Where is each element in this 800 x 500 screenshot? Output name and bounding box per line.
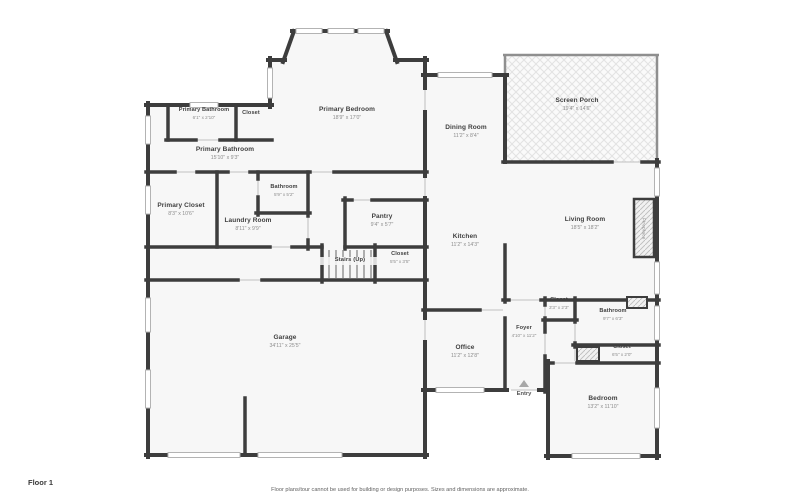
room-name: Bedroom [549,395,657,403]
room-label-pantry: Pantry 9'4" x 5'7" [352,213,412,229]
room-dims: 5'5" x 3'5" [377,259,423,265]
room-dims: 6'1" x 2'10" [174,115,234,121]
room-label-bathroom-br: Bathroom 9'7" x 6'3" [578,308,648,322]
room-name: Pantry [352,213,412,221]
room-name: Screen Porch [527,97,627,105]
room-label-office: Office 11'2" x 12'8" [428,344,502,360]
room-dims: 11'2" x 12'8" [428,353,502,360]
room-label-living-room: Living Room 18'5" x 18'2" [535,216,635,232]
room-name: Closet [231,110,271,117]
room-name: Closet [542,297,576,304]
room-dims: 3'3" x 2'3" [542,305,576,311]
room-dims: 11'2" x 8'4" [426,133,506,140]
room-name: Closet [590,344,654,351]
room-name: Primary Bedroom [297,106,397,114]
room-label-closet-br: Closet 6'5" x 2'0" [590,344,654,358]
room-dims: 8'3" x 10'6" [147,211,215,218]
room-label-primary-closet: Primary Closet 8'3" x 10'6" [147,202,215,218]
room-dims: 6'5" x 2'0" [590,352,654,358]
room-dims: 4'10" x 11'2" [501,333,547,339]
room-dims: 9'4" x 5'7" [352,222,412,229]
room-label-primary-bathroom-main: Primary Bathroom 15'10" x 9'3" [165,146,285,162]
floor-plan-page: Primary Bathroom 6'1" x 2'10" Closet Pri… [0,0,800,500]
room-dims: 11'2" x 14'3" [425,242,505,249]
room-label-laundry-room: Laundry Room 8'11" x 9'9" [210,217,286,233]
room-name: Garage [230,334,340,342]
room-name: Dining Room [426,124,506,132]
room-label-bedroom: Bedroom 13'2" x 11'10" [549,395,657,411]
room-name: Office [428,344,502,352]
room-label-closet-stairs: Closet 5'5" x 3'5" [377,251,423,265]
room-label-garage: Garage 34'11" x 25'5" [230,334,340,350]
room-dims: 8'11" x 9'9" [210,226,286,233]
floor-selector-label: Floor 1 [28,478,53,487]
room-name: Laundry Room [210,217,286,225]
room-name: Foyer [501,325,547,332]
room-dims: 19'4" x 14'6" [527,106,627,113]
room-name: Bathroom [578,308,648,315]
room-name: Stairs (Up) [320,257,380,265]
room-label-foyer: Foyer 4'10" x 11'2" [501,325,547,339]
room-dims: 13'2" x 11'10" [549,404,657,411]
room-name: Living Room [535,216,635,224]
room-label-bathroom-small: Bathroom 5'9" x 5'2" [258,184,310,198]
room-label-primary-bathroom-small: Primary Bathroom 6'1" x 2'10" [174,107,234,121]
disclaimer-text: Floor plans/tour cannot be used for buil… [0,487,800,493]
room-label-dining-room: Dining Room 11'2" x 8'4" [426,124,506,140]
room-label-closet-foyer: Closet 3'3" x 2'3" [542,297,576,311]
room-name: Primary Bathroom [174,107,234,114]
room-dims: 34'11" x 25'5" [230,343,340,350]
room-dims: 18'9" x 17'0" [297,115,397,122]
room-name: Primary Bathroom [165,146,285,154]
fireplace-label: Fireplace [636,202,652,256]
room-label-kitchen: Kitchen 11'2" x 14'3" [425,233,505,249]
entry-label: Entry [504,391,544,397]
room-name: Primary Closet [147,202,215,210]
room-dims: 5'9" x 5'2" [258,192,310,198]
room-dims: 18'5" x 18'2" [535,225,635,232]
room-dims: 15'10" x 9'3" [165,155,285,162]
room-label-closet-top: Closet [231,110,271,117]
room-name: Bathroom [258,184,310,191]
room-label-primary-bedroom: Primary Bedroom 18'9" x 17'0" [297,106,397,122]
room-label-stairs: Stairs (Up) [320,257,380,265]
room-name: Closet [377,251,423,258]
room-label-screen-porch: Screen Porch 19'4" x 14'6" [527,97,627,113]
floor-plan-drawing [0,0,800,500]
room-dims: 9'7" x 6'3" [578,316,648,322]
room-name: Kitchen [425,233,505,241]
bathroom-fixture-hatch [627,297,647,308]
